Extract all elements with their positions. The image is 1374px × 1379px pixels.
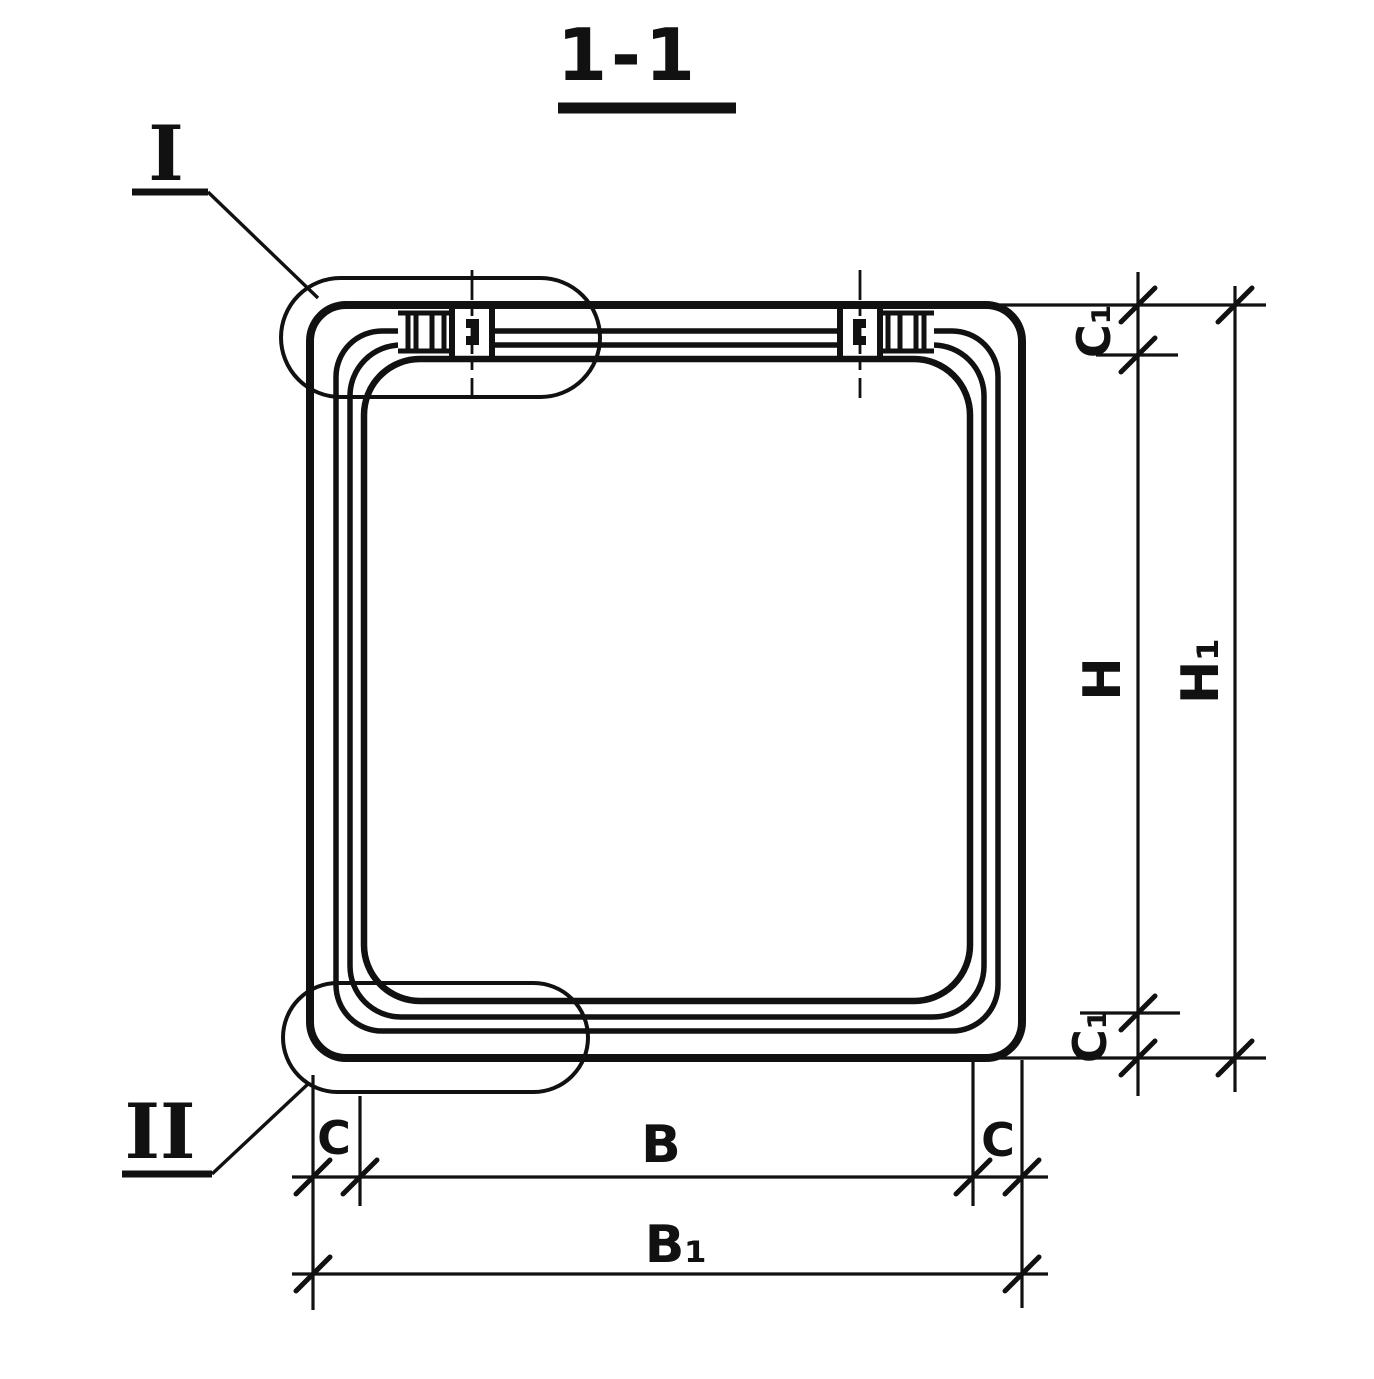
section-wall-line-a [336, 331, 998, 1031]
detail-leader-line [208, 192, 318, 298]
hole-pin-notch [861, 328, 866, 336]
box-section-outline [310, 305, 1022, 1058]
detail-label-ii: II [124, 1087, 195, 1176]
detail-label-i: I [148, 109, 184, 198]
detail-boundaries [281, 278, 600, 1092]
dimension-label-b: B [641, 1115, 681, 1175]
section-title: 1-1 [557, 13, 699, 97]
dimension-label-c-left: C [317, 1111, 351, 1165]
drawing-sheet: 1-1 [0, 0, 1374, 1379]
section-1-1-technical-drawing: 1-1 [0, 0, 1374, 1379]
section-inner-contour [364, 359, 970, 1001]
dimensions-bottom: C B C B₁ [292, 1060, 1048, 1310]
dimension-label-b1: B₁ [645, 1215, 707, 1275]
detail-callout-ii: II [122, 1084, 308, 1176]
top-slab-joint-right [838, 270, 934, 398]
dimension-label-c-right: C [981, 1113, 1015, 1167]
section-wall-line-b [350, 345, 984, 1017]
dimension-label-h: H [1073, 657, 1133, 701]
dimension-label-h1: H₁ [1171, 638, 1231, 704]
section-outer-contour [310, 305, 1022, 1058]
section-title-block: 1-1 [557, 13, 736, 108]
dimensions-right: C₁ H H₁ C₁ [1000, 272, 1266, 1096]
dimension-label-c1-bottom: C₁ [1063, 1009, 1117, 1063]
hole-pin-notch [466, 328, 471, 336]
top-slab-joint-left [398, 270, 494, 398]
detail-leader-line [212, 1084, 308, 1174]
detail-callout-i: I [132, 109, 318, 298]
dimension-label-c1-top: C₁ [1067, 304, 1121, 358]
